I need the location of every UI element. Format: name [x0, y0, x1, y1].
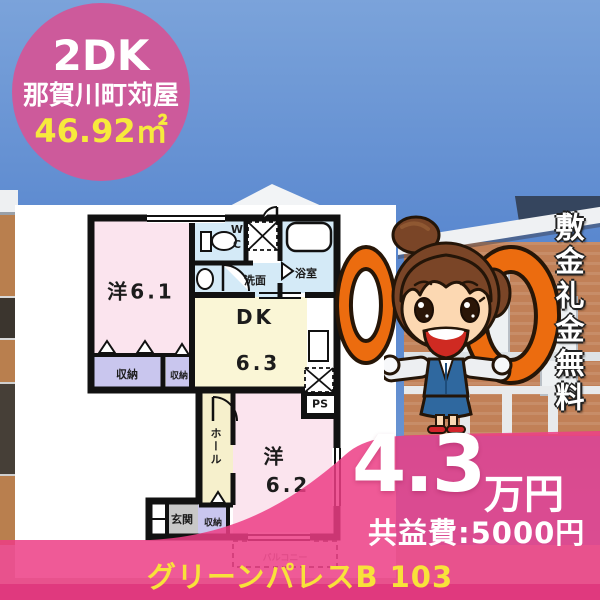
room-label-yo62-size: 6.2	[266, 473, 310, 497]
room-label-wc: WC	[232, 223, 243, 253]
badge-location: 那賀川町苅屋	[23, 80, 179, 113]
mascot-character	[384, 213, 514, 435]
room-label-closet1: 収納	[116, 366, 138, 382]
badge-area: 46.92㎡	[34, 112, 167, 150]
room-label-hall: ホール	[207, 428, 223, 467]
room-label-bath: 浴室	[295, 265, 317, 281]
floorplan-panel: 洋6.1 収納 収納 WC 洗面 浴室 DK 6.3 PS ホール 洋 6.2 …	[15, 205, 396, 578]
rent-value: 4.3	[352, 426, 484, 504]
room-label-yo62: 洋	[264, 441, 287, 470]
room-label-dk-size: 6.3	[236, 351, 280, 375]
room-label-closet3: 収納	[204, 516, 222, 529]
room-label-genkan: 玄関	[171, 511, 193, 527]
room-label-senmen: 洗面	[244, 272, 266, 288]
property-badge: 2DK 那賀川町苅屋 46.92㎡	[12, 3, 190, 181]
room-label-closet2: 収納	[170, 369, 188, 382]
room-label-ps: PS	[312, 398, 328, 411]
room-label-yo61: 洋6.1	[107, 276, 174, 305]
badge-layout-type: 2DK	[53, 33, 150, 79]
vertical-promo-text: 敷金礼金無料	[550, 212, 586, 416]
property-name: グリーンパレスB 103	[0, 554, 600, 596]
room-label-dk: DK	[236, 305, 274, 329]
common-fee: 共益費:5000円	[368, 510, 585, 552]
